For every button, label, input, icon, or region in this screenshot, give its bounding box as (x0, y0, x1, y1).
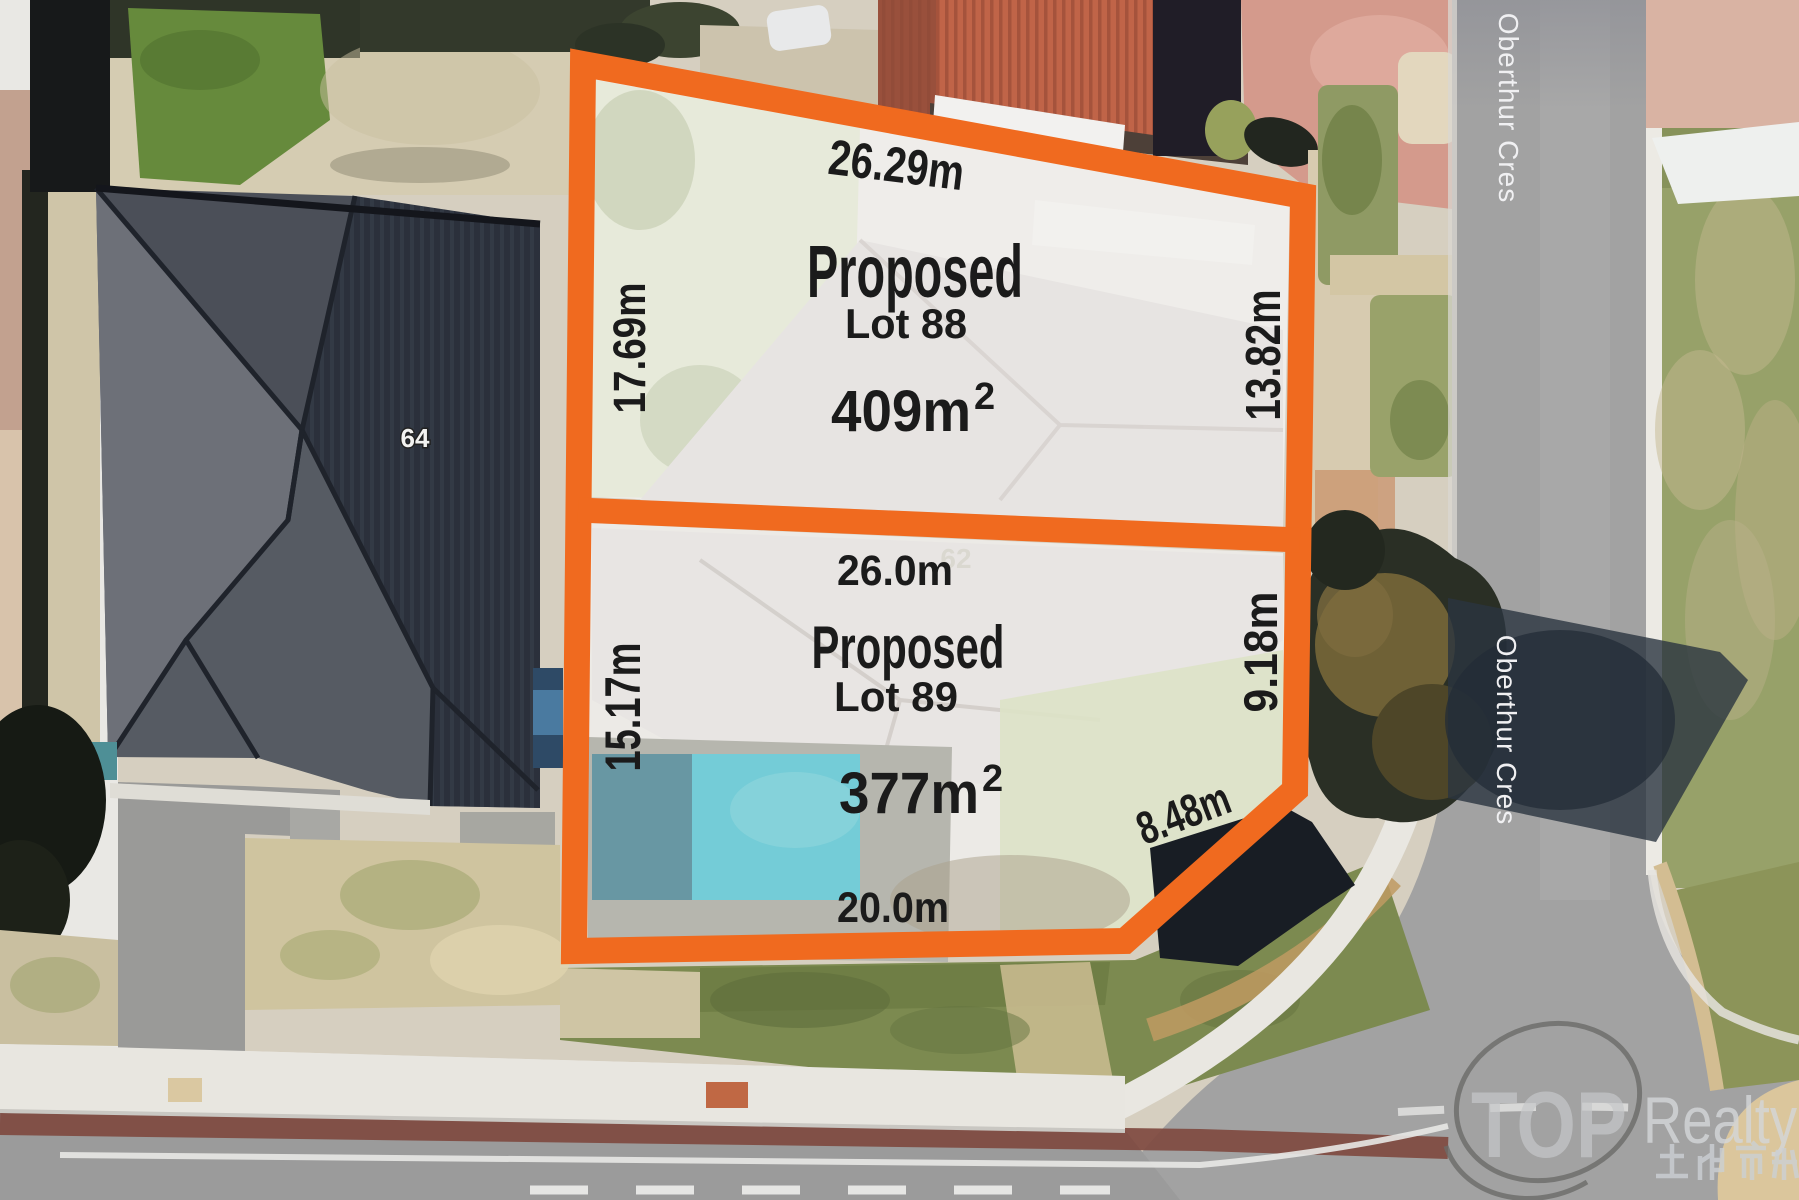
svg-text:20.0m: 20.0m (837, 884, 949, 932)
svg-text:64: 64 (401, 423, 430, 453)
svg-text:Lot 88: Lot 88 (845, 300, 967, 347)
svg-text:26.0m: 26.0m (837, 547, 953, 595)
svg-text:Realty: Realty (1643, 1083, 1797, 1157)
svg-text:17.69m: 17.69m (604, 283, 655, 414)
svg-text:Oberthur Cres: Oberthur Cres (1491, 635, 1522, 825)
svg-text:9.18m: 9.18m (1234, 592, 1287, 713)
svg-text:13.82m: 13.82m (1237, 290, 1291, 421)
svg-text:Oberthur Cres: Oberthur Cres (1493, 13, 1524, 203)
svg-text:Proposed: Proposed (812, 614, 1005, 681)
svg-text:TOP: TOP (1471, 1072, 1627, 1177)
svg-text:Lot 89: Lot 89 (834, 673, 958, 720)
svg-text:2: 2 (974, 376, 995, 418)
svg-text:15.17m: 15.17m (595, 643, 651, 772)
svg-text:2: 2 (982, 758, 1003, 800)
svg-text:377m: 377m (839, 761, 979, 826)
svg-text:409m: 409m (831, 379, 971, 444)
